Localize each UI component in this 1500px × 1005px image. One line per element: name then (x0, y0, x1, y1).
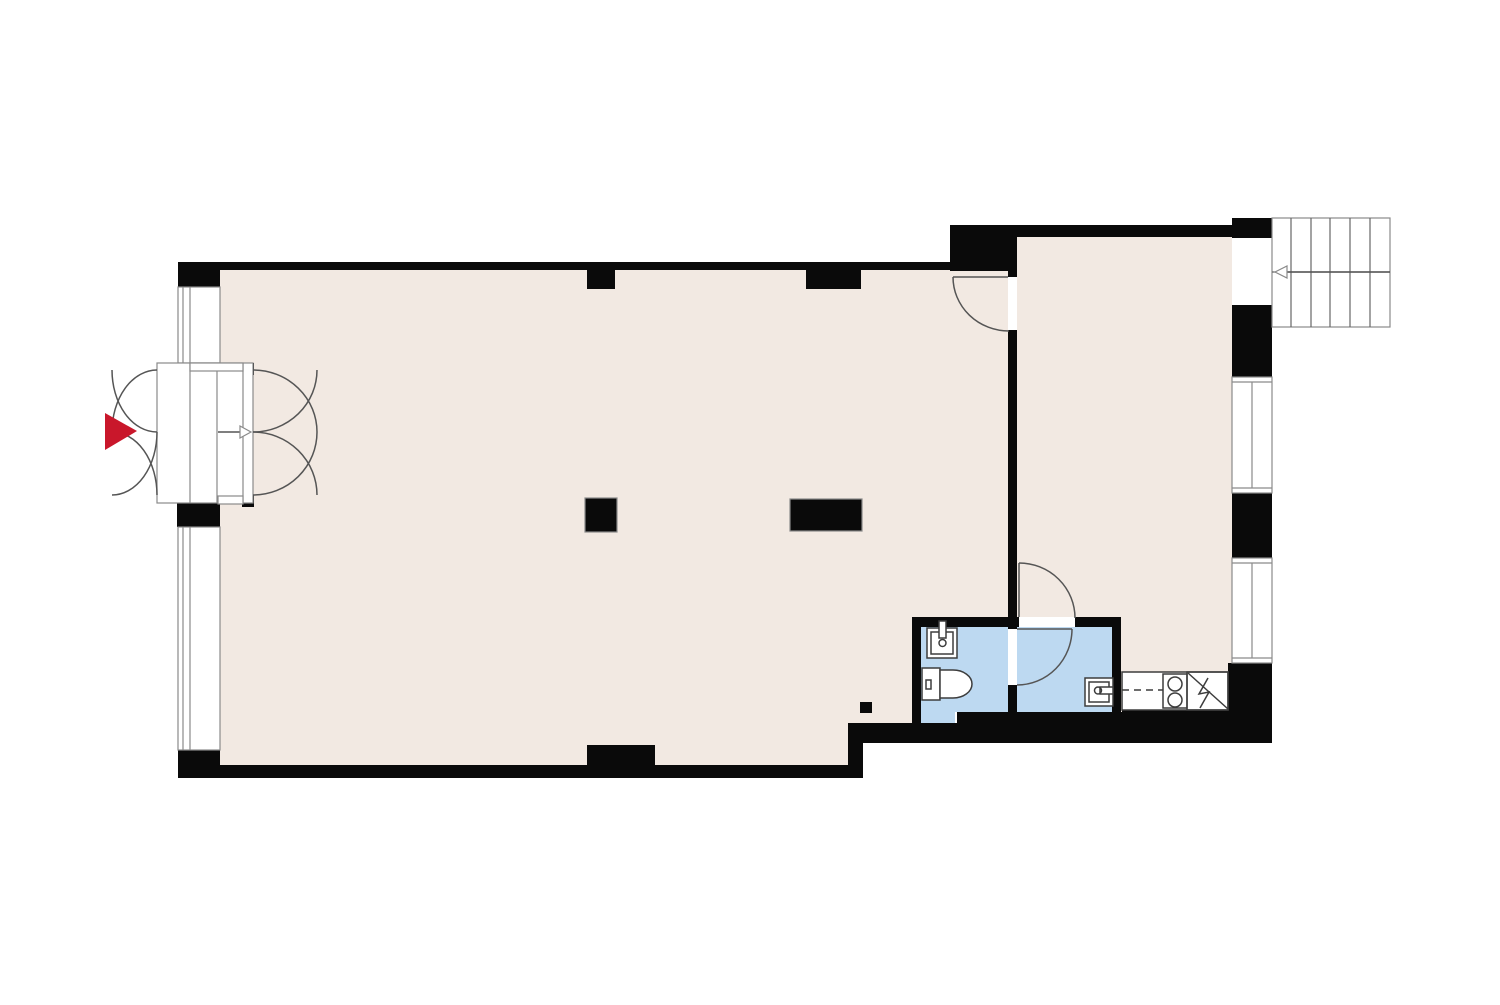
toilet (922, 668, 972, 700)
wall-partition-lower (1008, 330, 1017, 617)
vestibule-bottom-track (218, 496, 243, 504)
wall-top-right-section (950, 225, 1232, 237)
wall-corner-bottom-left (178, 750, 220, 778)
opening-main-to-second (1008, 277, 1017, 330)
faucet-stem (939, 621, 946, 638)
wall-corner-top-right (1232, 218, 1272, 238)
kitchen (1122, 672, 1228, 710)
window-frame (178, 527, 220, 750)
column-b (790, 499, 862, 531)
wall-bottom-band-b (957, 712, 1122, 743)
pilaster-top-a (587, 270, 615, 289)
pilaster-bottom (587, 745, 655, 768)
floor-plan-page (0, 0, 1500, 1000)
toilet-bowl (940, 670, 972, 698)
column-small-dot (860, 702, 872, 713)
column-a (585, 498, 617, 532)
wall-right-seg1 (1232, 305, 1272, 377)
wall-bottom-main (178, 765, 863, 778)
side-window-upper (1232, 377, 1272, 493)
floor-plan-drawing (0, 0, 1500, 1000)
toilet-room-floor-notch (921, 712, 955, 723)
side-window-lower (1232, 558, 1272, 663)
wall-corner-bottom-right (1228, 663, 1272, 743)
wall-corner-top-left (178, 262, 220, 287)
storefront-window-upper (178, 287, 220, 363)
opening-second-to-washroom (1019, 617, 1075, 627)
opening-washroom-to-toilet (1008, 629, 1017, 685)
window-frame (178, 287, 220, 363)
wall-partition-top (1008, 237, 1017, 277)
wall-right-seg2 (1232, 493, 1272, 558)
wall-bath-top-left (912, 617, 1019, 627)
utility-sink (1085, 678, 1113, 706)
vestibule-box (157, 363, 253, 503)
room-floors (219, 237, 1232, 765)
storefront-window-lower (178, 527, 220, 750)
vestibule-top-track (190, 363, 243, 371)
wall-top-main (178, 262, 962, 270)
wall-bottom-band-a (848, 723, 957, 743)
staircase (1272, 218, 1390, 327)
entrance-marker-red-arrow-icon (105, 413, 137, 450)
pilaster-top-b (806, 270, 861, 289)
